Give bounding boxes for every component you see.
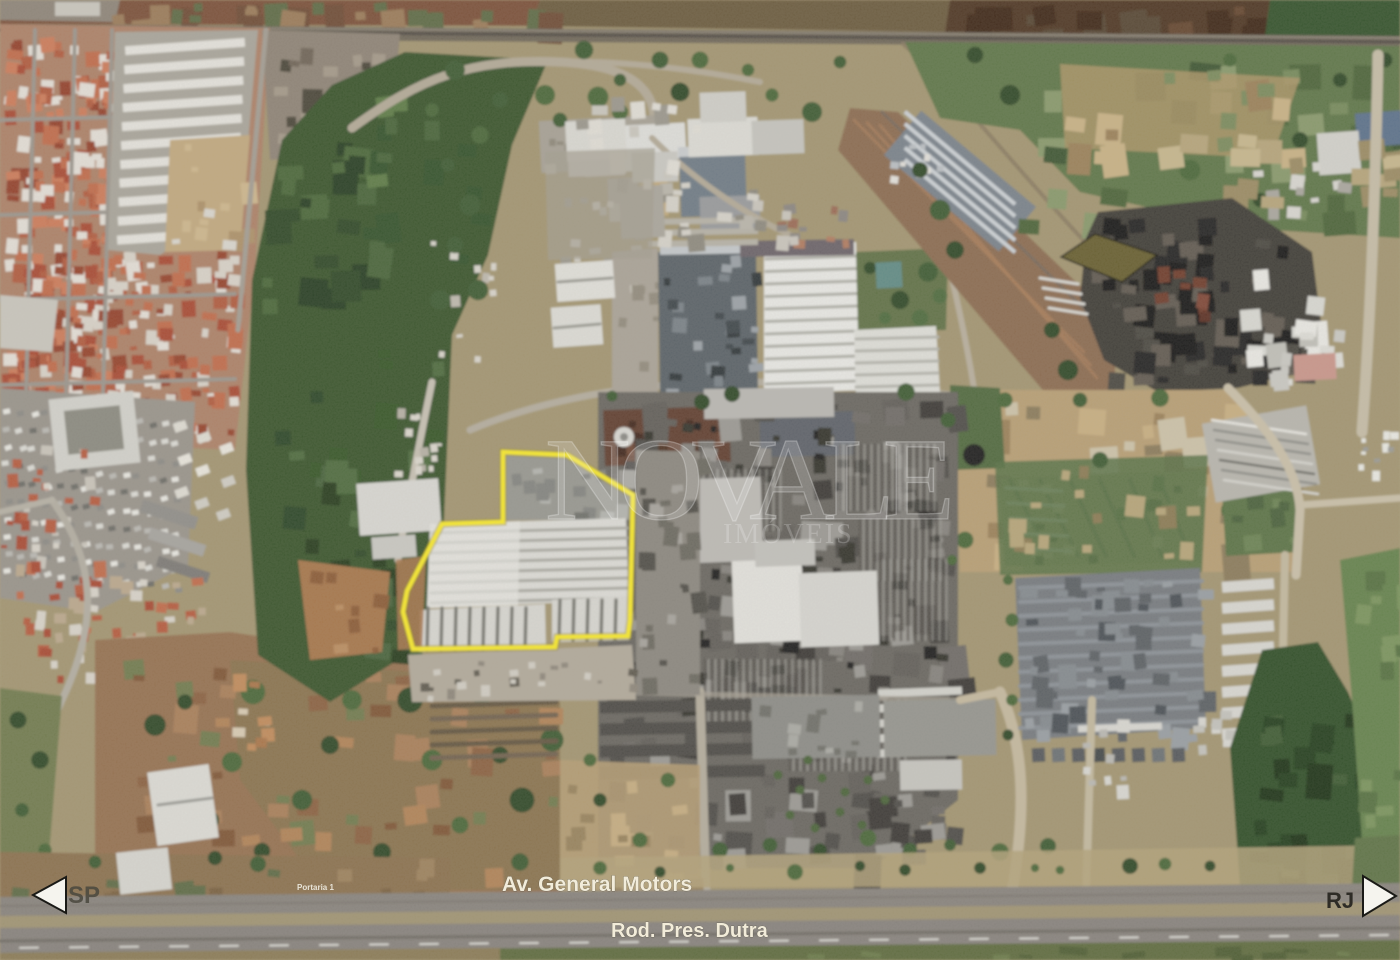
svg-text:SP: SP [68,882,100,909]
svg-text:Av. General Motors: Av. General Motors [502,873,692,896]
svg-text:Portaria 1: Portaria 1 [297,883,334,892]
svg-text:RJ: RJ [1326,888,1354,913]
svg-text:Rod. Pres. Dutra: Rod. Pres. Dutra [611,920,769,942]
svg-text:IMÓVEIS: IMÓVEIS [723,519,854,550]
